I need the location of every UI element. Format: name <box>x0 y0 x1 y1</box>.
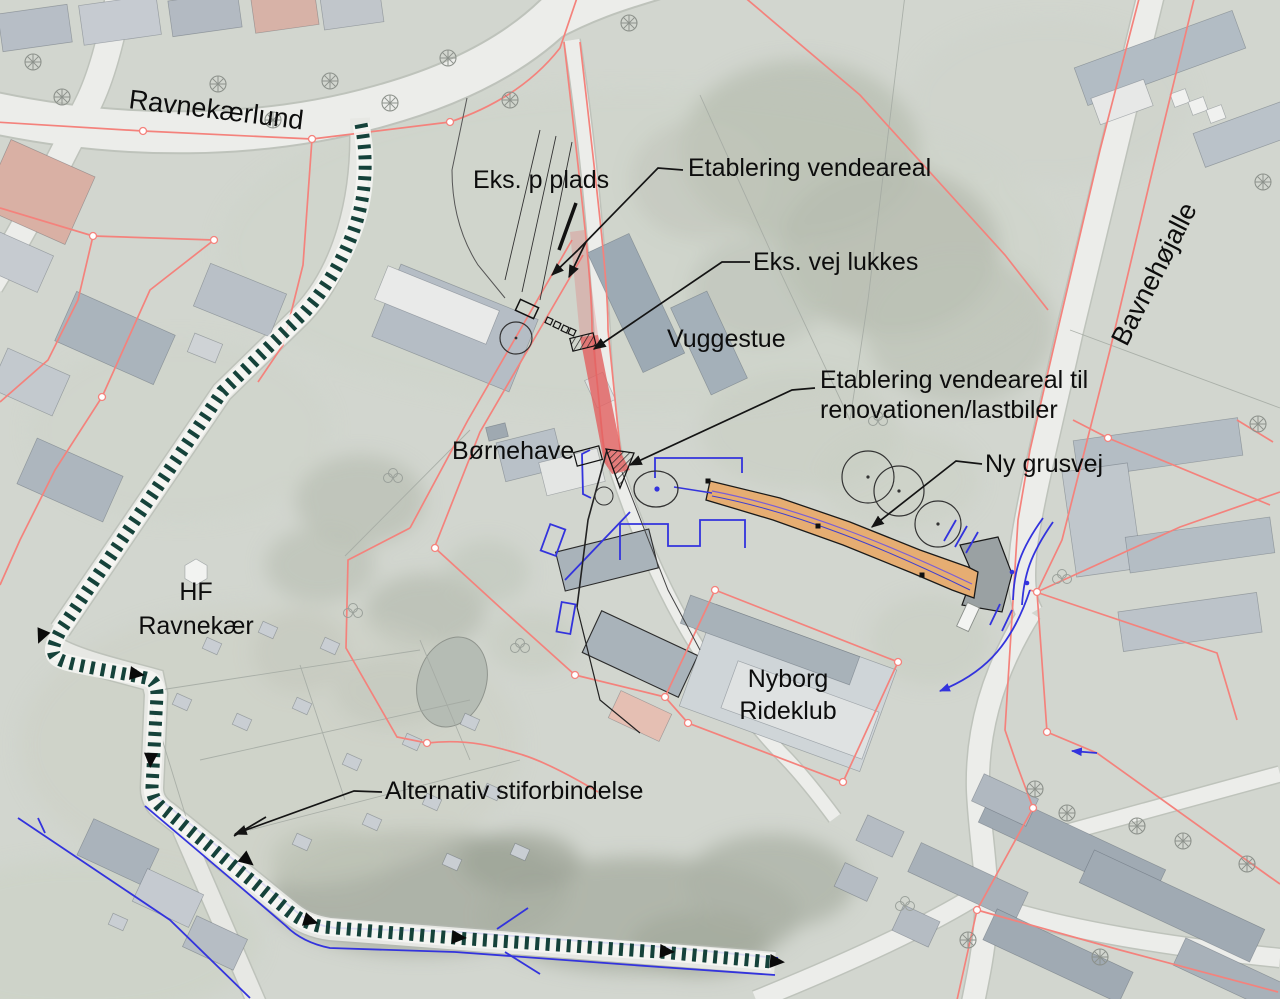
label-vendeareal-renovation-line1: Etablering vendeareal til <box>820 366 1088 394</box>
label-vendeareal-renovation-line2: renovationen/lastbiler <box>820 396 1058 424</box>
label-rideklub-line2: Rideklub <box>739 697 836 725</box>
label-vuggestue: Vuggestue <box>667 325 786 353</box>
label-eks-p-plads: Eks. p plads <box>473 166 609 194</box>
label-alternativ-sti: Alternativ stiforbindelse <box>385 777 643 805</box>
label-ny-grusvej: Ny grusvej <box>985 450 1103 478</box>
map-canvas: Ravnekærlund Eks. p plads Etablering ven… <box>0 0 1280 999</box>
label-hf-line1: HF <box>179 578 212 606</box>
label-hf-line2: Ravnekær <box>138 612 253 640</box>
label-eks-vej-lukkes: Eks. vej lukkes <box>753 248 918 276</box>
label-etablering-vendeareal: Etablering vendeareal <box>688 154 931 182</box>
label-boernehave: Børnehave <box>452 437 574 465</box>
site-plan-map: Ravnekærlund Eks. p plads Etablering ven… <box>0 0 1280 999</box>
label-rideklub-line1: Nyborg <box>748 665 829 693</box>
